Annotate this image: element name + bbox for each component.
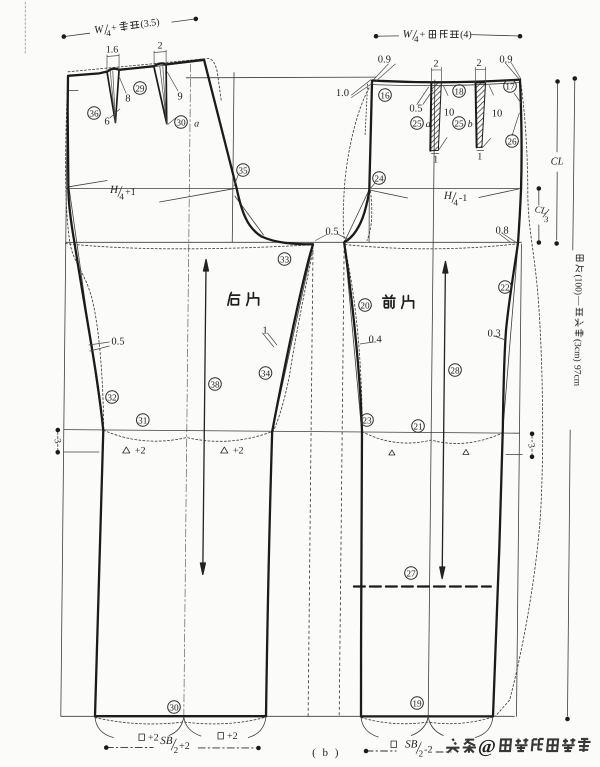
svg-text:-2: -2 [424, 745, 432, 756]
svg-text:18: 18 [454, 86, 464, 96]
svg-text:1.6: 1.6 [106, 45, 119, 56]
svg-text:+2: +2 [179, 741, 190, 752]
svg-text:b: b [468, 119, 473, 130]
svg-text:0.3: 0.3 [487, 329, 500, 340]
svg-text:25: 25 [454, 118, 464, 128]
svg-text:8: 8 [125, 94, 130, 105]
svg-text:9: 9 [177, 92, 182, 103]
svg-text:22: 22 [500, 282, 510, 292]
svg-text:4: 4 [414, 34, 419, 44]
svg-text:30: 30 [176, 117, 186, 127]
svg-text:+: + [420, 30, 426, 41]
svg-text:6: 6 [104, 117, 109, 128]
svg-text:(100): (100) [572, 275, 583, 296]
svg-text:1: 1 [477, 152, 482, 163]
svg-text:0.5: 0.5 [325, 227, 338, 238]
svg-text:0.9: 0.9 [378, 55, 391, 66]
svg-text:+2: +2 [148, 733, 159, 744]
svg-text:16: 16 [380, 90, 390, 100]
svg-text:23: 23 [362, 415, 372, 425]
svg-text:+1: +1 [125, 187, 136, 198]
svg-text:+2: +2 [227, 731, 238, 742]
svg-text:25: 25 [412, 118, 422, 128]
svg-text:H: H [443, 190, 453, 202]
svg-text:2: 2 [433, 59, 438, 70]
svg-text:CL: CL [551, 157, 564, 168]
svg-text:30: 30 [169, 702, 179, 712]
svg-text:2: 2 [419, 749, 424, 759]
svg-text:(4): (4) [460, 30, 472, 41]
svg-text:SB: SB [405, 739, 418, 751]
svg-text:29: 29 [135, 83, 145, 93]
svg-text:+2: +2 [233, 446, 244, 457]
svg-text:0.5: 0.5 [111, 337, 124, 348]
svg-text:26: 26 [507, 136, 517, 146]
svg-text:a: a [194, 119, 199, 130]
svg-text:1.0: 1.0 [336, 88, 349, 99]
svg-text:a: a [426, 119, 431, 130]
svg-text:(3cm): (3cm) [572, 339, 583, 362]
svg-text:4: 4 [119, 192, 124, 202]
svg-text:0.8: 0.8 [495, 226, 508, 237]
svg-text:0.9: 0.9 [499, 55, 512, 66]
svg-text:97cm: 97cm [571, 365, 581, 387]
svg-text:10: 10 [492, 109, 503, 120]
svg-text:2: 2 [174, 745, 179, 755]
svg-text:32: 32 [107, 392, 117, 402]
svg-text:31: 31 [138, 415, 148, 425]
svg-text:27: 27 [406, 568, 416, 578]
svg-text:SB: SB [160, 735, 173, 747]
svg-text:2: 2 [476, 58, 481, 69]
svg-text:28: 28 [450, 365, 460, 375]
svg-text:—: — [573, 295, 583, 306]
svg-text:20: 20 [360, 300, 370, 310]
svg-text:34: 34 [261, 368, 271, 378]
svg-text:21: 21 [413, 421, 423, 431]
svg-text:@: @ [477, 737, 497, 758]
svg-text:0.4: 0.4 [368, 335, 382, 346]
svg-text:19: 19 [412, 698, 422, 708]
svg-text:-1: -1 [459, 193, 467, 204]
svg-text:35: 35 [238, 165, 248, 175]
svg-text:2: 2 [157, 41, 162, 52]
svg-text:0.5: 0.5 [409, 104, 422, 115]
svg-text:10: 10 [444, 108, 455, 119]
svg-text:+2: +2 [135, 446, 146, 457]
svg-text:W: W [403, 29, 413, 41]
svg-text:24: 24 [374, 173, 384, 183]
svg-text:38: 38 [210, 379, 220, 389]
svg-text:1: 1 [433, 155, 438, 166]
svg-text:1: 1 [262, 326, 267, 337]
svg-text:4: 4 [453, 198, 458, 208]
svg-text:36: 36 [89, 108, 99, 118]
svg-text:H: H [109, 184, 119, 196]
svg-text:33: 33 [280, 254, 290, 264]
svg-text:( b ): ( b ) [312, 747, 340, 759]
svg-text:17: 17 [505, 81, 515, 91]
